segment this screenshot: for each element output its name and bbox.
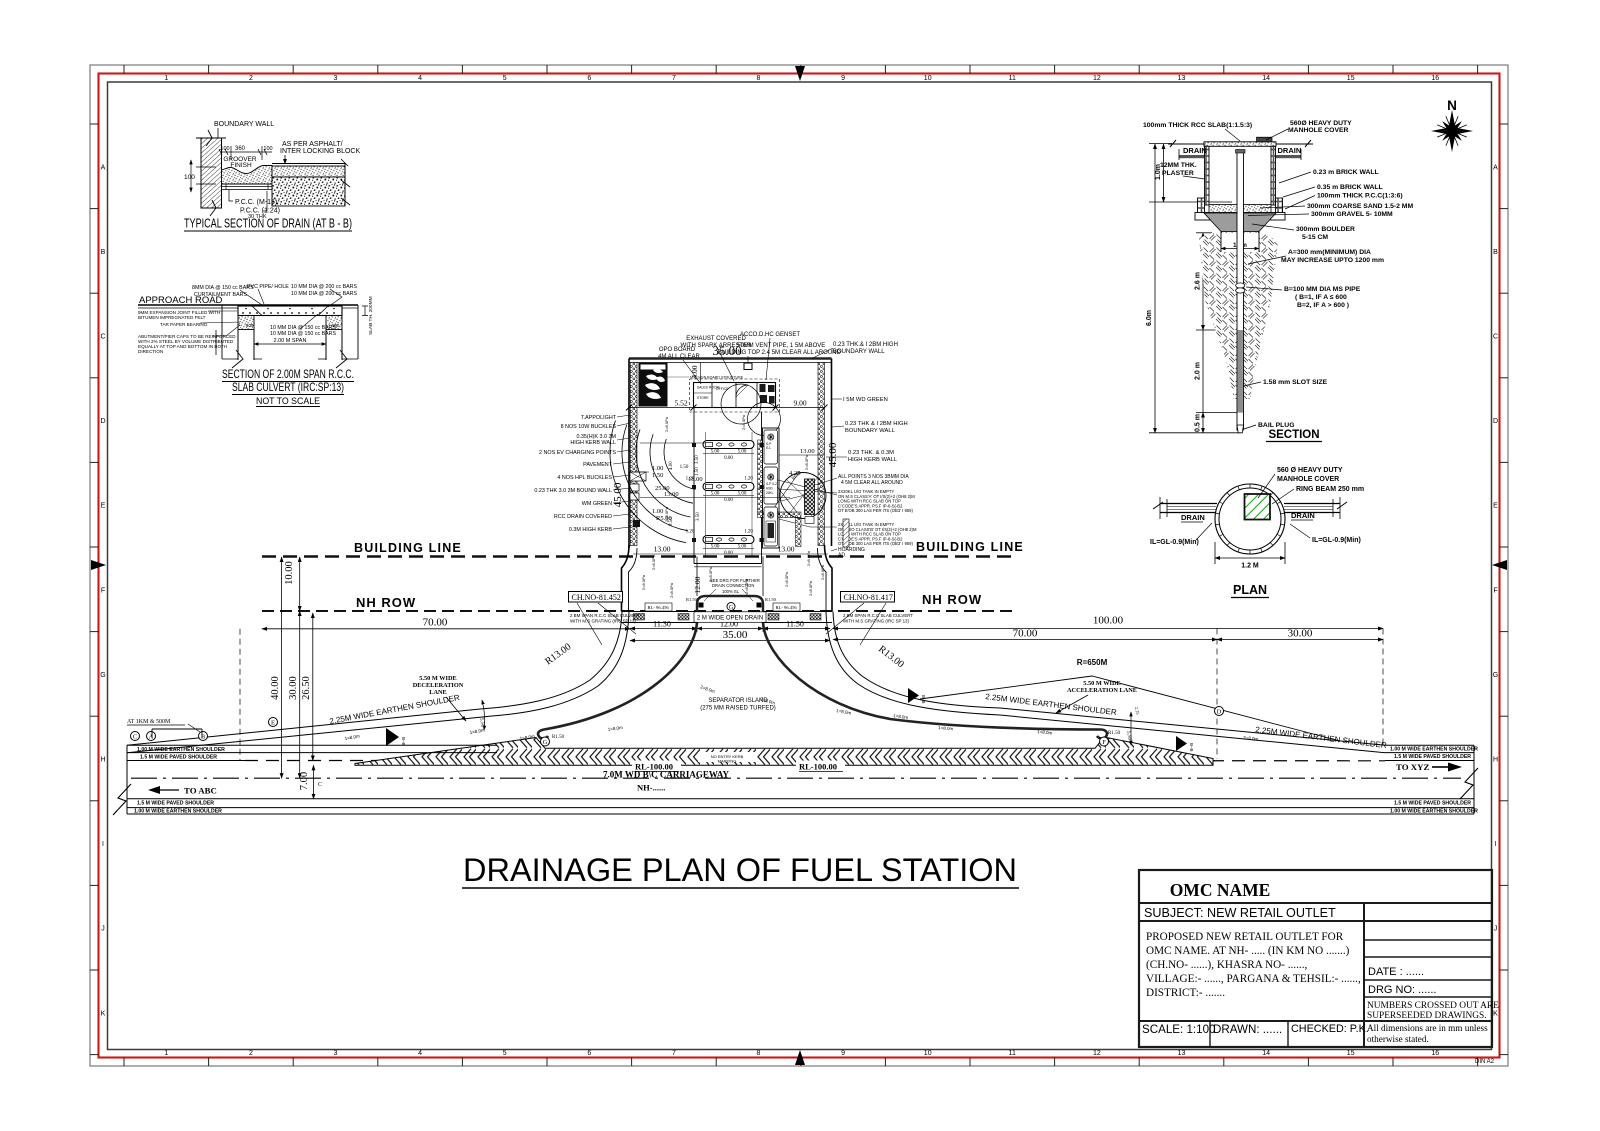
svg-text:BUILDING LINE: BUILDING LINE <box>916 540 1024 554</box>
svg-text:2=8.0Pa: 2=8.0Pa <box>820 564 825 580</box>
svg-text:K: K <box>1493 1010 1498 1017</box>
svg-text:AD.: AD. <box>838 553 846 559</box>
svg-text:11.50: 11.50 <box>786 620 804 629</box>
svg-text:NUMBERS CROSSED OUT ARE: NUMBERS CROSSED OUT ARE <box>1367 1001 1499 1011</box>
svg-text:1.50: 1.50 <box>652 472 663 479</box>
svg-text:4: 4 <box>418 75 422 82</box>
svg-text:MAY INCREASE UPTO 1200 mm: MAY INCREASE UPTO 1200 mm <box>1281 257 1384 264</box>
svg-text:2=8.0Pa: 2=8.0Pa <box>651 554 656 570</box>
svg-text:I 5M WD GREEN: I 5M WD GREEN <box>843 397 888 403</box>
svg-text:8: 8 <box>757 1050 761 1057</box>
svg-text:2=8.0Pa: 2=8.0Pa <box>708 566 713 582</box>
svg-text:11: 11 <box>1009 1050 1016 1057</box>
svg-text:CHECKED: P.K.: CHECKED: P.K. <box>1291 1023 1369 1035</box>
svg-text:T.APPOLIGHT: T.APPOLIGHT <box>581 415 617 421</box>
svg-text:2 NOS EV CHARGING POINTS: 2 NOS EV CHARGING POINTS <box>539 450 616 456</box>
svg-text:OT B'OB 300 LAS PER ITS (OB: OT B'OB 300 LAS PER ITS (OB3' I 959) <box>838 508 913 513</box>
svg-text:(CH.NO- ......), KHASRA NO- ..: (CH.NO- ......), KHASRA NO- ......, <box>1146 959 1307 971</box>
svg-text:12MM THK.: 12MM THK. <box>1160 162 1197 169</box>
svg-text:7.0M WD B\C CARRIAGEWAY: 7.0M WD B\C CARRIAGEWAY <box>603 770 730 780</box>
svg-text:RL- 96.456: RL- 96.456 <box>776 605 798 610</box>
svg-text:2=8.0Pa: 2=8.0Pa <box>669 582 674 598</box>
svg-text:12: 12 <box>1093 1050 1101 1057</box>
svg-text:J: J <box>1494 926 1498 933</box>
svg-text:3: 3 <box>334 75 338 82</box>
svg-text:2=8.0Pa: 2=8.0Pa <box>741 414 746 430</box>
svg-text:SLAB CULVERT (IRC:SP:13): SLAB CULVERT (IRC:SP:13) <box>232 380 344 394</box>
svg-text:G: G <box>100 672 105 679</box>
svg-text:15: 15 <box>1347 75 1355 82</box>
svg-text:RCC DRAIN COVERED: RCC DRAIN COVERED <box>554 514 612 520</box>
svg-text:12: 12 <box>1093 75 1101 82</box>
svg-text:2: 2 <box>249 75 253 82</box>
svg-text:B–B: B–B <box>921 695 926 704</box>
svg-text:5.52: 5.52 <box>674 399 687 408</box>
svg-text:300mm GRAVEL 5- 10MM: 300mm GRAVEL 5- 10MM <box>1311 211 1393 218</box>
svg-text:0.00: 0.00 <box>724 551 733 556</box>
svg-text:A: A <box>149 734 154 741</box>
svg-text:5.00: 5.00 <box>738 491 747 496</box>
svg-text:1.5 M WIDE PAVED SHOULDER: 1.5 M WIDE PAVED SHOULDER <box>1394 754 1471 760</box>
svg-text:OMC NAME: OMC NAME <box>1170 880 1271 900</box>
svg-text:IL=GL-0.9(Min): IL=GL-0.9(Min) <box>1312 537 1361 544</box>
svg-text:B–B: B–B <box>401 737 406 746</box>
svg-text:MANHOLE COVER: MANHOLE COVER <box>1288 127 1349 134</box>
svg-text:10 MM DIA @ 150 cc BARS: 10 MM DIA @ 150 cc BARS <box>270 331 336 337</box>
svg-text:100% SL: 100% SL <box>722 589 740 594</box>
svg-text:HSD: HSD <box>766 487 773 491</box>
svg-text:1: 1 <box>164 1050 168 1057</box>
svg-text:1.00: 1.00 <box>652 465 663 472</box>
svg-text:NOT TO SCALE: NOT TO SCALE <box>256 396 320 406</box>
svg-text:13.00: 13.00 <box>664 491 679 498</box>
svg-text:30.00: 30.00 <box>1288 628 1313 640</box>
svg-text:2: 2 <box>249 1050 253 1057</box>
svg-text:BOUNDARY WALL: BOUNDARY WALL <box>214 121 274 128</box>
svg-text:100.00: 100.00 <box>1093 615 1124 627</box>
svg-text:E: E <box>271 720 275 727</box>
svg-text:2.6 m: 2.6 m <box>1195 272 1202 290</box>
svg-text:SECTION: SECTION <box>1268 429 1319 441</box>
svg-text:9.00: 9.00 <box>793 399 806 408</box>
svg-text:5.00: 5.00 <box>711 544 720 549</box>
svg-text:OFFICE: OFFICE <box>716 387 729 391</box>
svg-text:0.23 THK.& I 2BM HIGH: 0.23 THK.& I 2BM HIGH <box>833 342 898 348</box>
svg-text:1.00 M WIDE EARTHEN SHOULDER: 1.00 M WIDE EARTHEN SHOULDER <box>134 808 222 814</box>
svg-text:VILLAGE:- ......, PARGANA & TE: VILLAGE:- ......, PARGANA & TEHSIL:- ...… <box>1146 973 1361 985</box>
svg-text:AS PER ASPHALT/: AS PER ASPHALT/ <box>282 141 343 148</box>
svg-text:11.30: 11.30 <box>653 620 671 629</box>
svg-text:10: 10 <box>924 1050 932 1057</box>
svg-text:B–B: B–B <box>1189 743 1194 752</box>
svg-text:1.5 M WIDE PAVED SHOULDER: 1.5 M WIDE PAVED SHOULDER <box>140 755 217 761</box>
svg-text:DRAIN: DRAIN <box>1183 146 1207 155</box>
svg-text:0.23 THK 3.0 3M BOUND WALL: 0.23 THK 3.0 3M BOUND WALL <box>534 488 612 494</box>
svg-text:PROPOSED NEW RETAIL OUTLET FOR: PROPOSED NEW RETAIL OUTLET FOR <box>1146 931 1344 943</box>
svg-text:E: E <box>1493 503 1498 510</box>
svg-text:30.00: 30.00 <box>288 676 299 700</box>
svg-text:7.00: 7.00 <box>299 772 310 790</box>
svg-text:CURTAILMENT BARS: CURTAILMENT BARS <box>194 292 247 298</box>
svg-text:10 MM DIA @ 200 cc BARS: 10 MM DIA @ 200 cc BARS <box>291 284 357 290</box>
svg-text:D: D <box>1493 418 1498 425</box>
svg-text:2=8.0Pa: 2=8.0Pa <box>744 578 749 594</box>
svg-text:OMC NAME. AT NH- ..... (IN KM: OMC NAME. AT NH- ..... (IN KM NO .......… <box>1146 945 1350 957</box>
svg-text:1.50: 1.50 <box>695 467 700 476</box>
svg-text:4 NOS HPL BUCKLES: 4 NOS HPL BUCKLES <box>557 475 612 481</box>
svg-text:3: 3 <box>334 1050 338 1057</box>
svg-text:45.00: 45.00 <box>827 442 839 467</box>
svg-text:6.0m: 6.0m <box>1146 310 1153 326</box>
svg-text:8MM DIA @ 150 cc BARS: 8MM DIA @ 150 cc BARS <box>192 285 254 291</box>
svg-text:16: 16 <box>1431 1050 1439 1057</box>
svg-text:DATE : ......: DATE : ...... <box>1368 966 1424 978</box>
svg-text:4 5M CLEAR ALL AROUND: 4 5M CLEAR ALL AROUND <box>841 480 903 486</box>
svg-text:300mm BOULDER: 300mm BOULDER <box>1296 226 1355 233</box>
svg-text:2.00 M SPAN: 2.00 M SPAN <box>274 338 307 344</box>
svg-text:1.00 M WIDE EARTHEN SHOULDER: 1.00 M WIDE EARTHEN SHOULDER <box>137 747 225 753</box>
svg-text:10.00: 10.00 <box>284 561 295 585</box>
svg-text:6: 6 <box>587 75 591 82</box>
svg-text:DIN A2: DIN A2 <box>1475 1059 1495 1065</box>
svg-text:5.00: 5.00 <box>738 449 747 454</box>
svg-text:TYPICAL SECTION OF DRAIN (AT B: TYPICAL SECTION OF DRAIN (AT B - B) <box>184 217 352 231</box>
svg-text:1.00 M WIDE EARTHEN SHOULDER: 1.00 M WIDE EARTHEN SHOULDER <box>1390 747 1478 753</box>
svg-text:70.00: 70.00 <box>1013 628 1038 640</box>
svg-text:45.00: 45.00 <box>612 482 624 507</box>
svg-text:DRAINAGE PLAN OF FUEL STATION: DRAINAGE PLAN OF FUEL STATION <box>463 852 1017 888</box>
svg-text:MANHOLE COVER: MANHOLE COVER <box>1277 476 1339 483</box>
svg-text:RL-100.00: RL-100.00 <box>799 762 837 772</box>
svg-text:IL=GL-0.9(Min): IL=GL-0.9(Min) <box>1150 539 1199 546</box>
svg-text:OPO BOARD: OPO BOARD <box>659 347 696 353</box>
svg-text:ACCELERATION LANE: ACCELERATION LANE <box>1067 687 1137 694</box>
svg-text:INTER LOCKING BLOCK: INTER LOCKING BLOCK <box>280 148 360 155</box>
svg-text:OT B'OB 300 LAS PER ITS (OB: OT B'OB 300 LAS PER ITS (OB3' I 959) <box>838 541 913 546</box>
svg-text:NH-......: NH-...... <box>637 783 665 793</box>
svg-text:DRAWN: ......: DRAWN: ...... <box>1213 1023 1282 1036</box>
svg-text:1.20: 1.20 <box>686 530 695 535</box>
svg-text:12.00: 12.00 <box>693 576 702 593</box>
svg-text:2=8.0Pa: 2=8.0Pa <box>804 454 809 470</box>
svg-text:16: 16 <box>1431 75 1439 82</box>
svg-text:DRAIN: DRAIN <box>1278 146 1302 155</box>
svg-text:2.0 m: 2.0 m <box>1195 362 1202 380</box>
svg-text:3.50: 3.50 <box>696 512 701 521</box>
svg-text:BOUNDARY WALL: BOUNDARY WALL <box>833 349 885 355</box>
svg-text:5.50 M WIDE: 5.50 M WIDE <box>1083 680 1121 687</box>
svg-text:A: A <box>101 164 106 171</box>
svg-text:13: 13 <box>1178 75 1186 82</box>
svg-text:RING BEAM 250 mm: RING BEAM 250 mm <box>1296 486 1364 493</box>
svg-text:STORE: STORE <box>697 396 709 400</box>
svg-text:SCALE: 1:100: SCALE: 1:100 <box>1142 1023 1215 1036</box>
svg-text:D: D <box>1217 709 1222 716</box>
svg-text:35.00: 35.00 <box>723 629 748 641</box>
svg-text:560Ø HEAVY DUTY: 560Ø HEAVY DUTY <box>1290 120 1352 127</box>
svg-text:100: 100 <box>263 146 272 152</box>
svg-text:3.50: 3.50 <box>695 455 700 464</box>
svg-text:4M ALL CLEAR: 4M ALL CLEAR <box>658 354 700 360</box>
svg-text:13.00: 13.00 <box>800 448 815 455</box>
svg-text:BOUNDARY WALL: BOUNDARY WALL <box>845 428 896 434</box>
svg-text:P.C.C. (M-15): P.C.C. (M-15) <box>235 199 277 206</box>
svg-text:S-P 3-2: S-P 3-2 <box>766 482 777 486</box>
svg-text:1.50: 1.50 <box>680 465 689 470</box>
svg-text:5-15 CM: 5-15 CM <box>1302 234 1328 241</box>
svg-text:PAVEMENT: PAVEMENT <box>583 462 613 468</box>
svg-text:5: 5 <box>503 1050 507 1057</box>
svg-text:2=8.0Pa: 2=8.0Pa <box>806 550 811 566</box>
svg-text:0.23 THK. & 0.3M: 0.23 THK. & 0.3M <box>848 450 894 456</box>
svg-text:2=8.0Pa: 2=8.0Pa <box>641 574 646 590</box>
svg-text:TO ABC: TO ABC <box>184 786 217 796</box>
svg-text:B=2, IF A > 600 ): B=2, IF A > 600 ) <box>1297 302 1349 309</box>
svg-text:SUBJECT: NEW RETAIL OUTLET: SUBJECT: NEW RETAIL OUTLET <box>1144 906 1336 920</box>
svg-text:18.00: 18.00 <box>688 476 703 483</box>
svg-text:35.00: 35.00 <box>712 343 741 358</box>
svg-text:13.00: 13.00 <box>778 545 795 554</box>
svg-text:360: 360 <box>235 146 246 152</box>
svg-text:BUILDING LINE: BUILDING LINE <box>354 541 462 555</box>
svg-text:D: D <box>100 418 105 425</box>
svg-text:1: 1 <box>164 75 168 82</box>
svg-text:50MM VENT PIPE, 1 5M ABOVE: 50MM VENT PIPE, 1 5M ABOVE <box>737 343 825 349</box>
svg-text:PLAN: PLAN <box>1233 583 1267 597</box>
svg-text:ACCO.D.HC GENSET: ACCO.D.HC GENSET <box>740 332 800 338</box>
svg-text:13.00: 13.00 <box>654 545 671 554</box>
svg-text:0.23 m BRICK WALL: 0.23 m BRICK WALL <box>1313 169 1379 176</box>
svg-text:B: B <box>101 249 106 256</box>
svg-text:BITUMEN IMPREGNATED FELT: BITUMEN IMPREGNATED FELT <box>138 315 206 320</box>
svg-text:2=8.0Pa: 2=8.0Pa <box>808 580 813 596</box>
svg-text:100mm THICK RCC SLAB(1:1.5:3): 100mm THICK RCC SLAB(1:1.5:3) <box>1143 122 1252 129</box>
svg-text:1.2 M: 1.2 M <box>1241 563 1259 570</box>
svg-text:WITH M.S GRATING (IRC SP 13): WITH M.S GRATING (IRC SP 13) <box>570 619 636 624</box>
svg-text:7: 7 <box>672 1050 676 1057</box>
svg-text:0.5 m: 0.5 m <box>1195 414 1202 432</box>
svg-text:I: I <box>102 841 104 848</box>
svg-text:100: 100 <box>184 174 195 181</box>
svg-text:5.00: 5.00 <box>711 491 720 496</box>
svg-text:FINISH: FINISH <box>230 162 252 169</box>
svg-text:I: I <box>1495 841 1497 848</box>
svg-text:SLAB TH. 200MM: SLAB TH. 200MM <box>368 296 374 335</box>
svg-text:7: 7 <box>672 75 676 82</box>
svg-text:C: C <box>318 782 322 788</box>
svg-text:8: 8 <box>757 75 761 82</box>
svg-text:5: 5 <box>503 75 507 82</box>
svg-text:4.00: 4.00 <box>669 461 674 470</box>
svg-text:9: 9 <box>841 75 845 82</box>
svg-text:10: 10 <box>924 75 932 82</box>
svg-text:AT 1KM & 500M: AT 1KM & 500M <box>127 719 171 725</box>
svg-text:RL- 96.456: RL- 96.456 <box>648 605 670 610</box>
svg-text:5.50 M WIDE: 5.50 M WIDE <box>419 675 457 682</box>
svg-text:BAIL PLUG: BAIL PLUG <box>1258 422 1295 429</box>
svg-text:MARKING: MARKING <box>718 759 737 764</box>
svg-text:DRG NO: ......: DRG NO: ...... <box>1368 984 1436 996</box>
svg-text:G: G <box>729 605 734 611</box>
svg-text:HIGH KERB WALL: HIGH KERB WALL <box>570 440 616 446</box>
svg-text:SUPERSEEDED DRAWINGS.: SUPERSEEDED DRAWINGS. <box>1367 1011 1487 1021</box>
svg-text:R=650M: R=650M <box>1077 658 1108 667</box>
svg-text:560 Ø HEAVY DUTY: 560 Ø HEAVY DUTY <box>1277 467 1343 474</box>
svg-text:NH ROW: NH ROW <box>922 592 982 607</box>
svg-text:EXHAUST COVERED: EXHAUST COVERED <box>686 336 746 342</box>
svg-text:SECTION OF 2.00M SPAN R.C.C.: SECTION OF 2.00M SPAN R.C.C. <box>222 367 354 381</box>
svg-text:1.00: 1.00 <box>652 508 663 515</box>
svg-text:DIRECTION: DIRECTION <box>138 349 163 354</box>
svg-text:14: 14 <box>1262 75 1270 82</box>
svg-text:DISTRICT:- .......: DISTRICT:- ....... <box>1146 987 1225 999</box>
svg-text:1.5 M WIDE PAVED SHOULDER: 1.5 M WIDE PAVED SHOULDER <box>1394 801 1471 807</box>
svg-text:0.00: 0.00 <box>724 456 733 461</box>
svg-text:All dimensions are in mm unles: All dimensions are in mm unless <box>1367 1023 1488 1033</box>
svg-text:5.00: 5.00 <box>711 449 720 454</box>
svg-text:HIGH KERB WALL: HIGH KERB WALL <box>848 457 898 463</box>
svg-text:13: 13 <box>1178 1050 1186 1057</box>
svg-text:500: 500 <box>246 323 254 328</box>
svg-text:9: 9 <box>841 1050 845 1057</box>
svg-text:40.00: 40.00 <box>270 676 281 700</box>
svg-text:F: F <box>101 587 105 594</box>
svg-text:R1.50: R1.50 <box>765 597 777 602</box>
svg-text:F: F <box>1102 739 1106 746</box>
svg-text:R1.50: R1.50 <box>552 735 565 740</box>
svg-text:0.00: 0.00 <box>724 498 733 503</box>
svg-text:2=8.0Pa: 2=8.0Pa <box>664 416 669 432</box>
svg-text:8 NOS 10W BUCKLES: 8 NOS 10W BUCKLES <box>561 424 617 430</box>
svg-text:20KL: 20KL <box>766 491 774 495</box>
svg-text:70.00: 70.00 <box>423 617 448 629</box>
svg-text:1.20: 1.20 <box>744 477 753 482</box>
svg-text:0.35 m BRICK WALL: 0.35 m BRICK WALL <box>1317 184 1383 191</box>
svg-text:4.25: 4.25 <box>789 470 800 477</box>
svg-text:1.58 mm SLOT SIZE: 1.58 mm SLOT SIZE <box>1263 379 1328 386</box>
svg-text:E-L: E-L <box>766 446 771 450</box>
svg-text:15: 15 <box>1347 1050 1355 1057</box>
svg-text:CH.NO-81.417: CH.NO-81.417 <box>844 593 893 602</box>
svg-text:DRAIN: DRAIN <box>1291 511 1315 520</box>
svg-text:2=8.0Pa: 2=8.0Pa <box>664 506 669 522</box>
svg-text:J: J <box>101 926 105 933</box>
svg-text:300mm COARSE SAND 1.5-2 MM: 300mm COARSE SAND 1.5-2 MM <box>1307 203 1413 210</box>
svg-text:11: 11 <box>1009 75 1016 82</box>
svg-text:2=8.0Pa: 2=8.0Pa <box>784 571 789 587</box>
svg-text:6: 6 <box>587 1050 591 1057</box>
svg-text:25.00: 25.00 <box>655 485 670 492</box>
svg-text:100mm THICK P.C.C(1:3:6): 100mm THICK P.C.C(1:3:6) <box>1317 193 1403 200</box>
svg-text:2 M WIDE OPEN DRAIN: 2 M WIDE OPEN DRAIN <box>697 616 763 622</box>
svg-text:B=100 MM DIA MS PIPE: B=100 MM DIA MS PIPE <box>1284 286 1361 293</box>
svg-text:DECELERATION: DECELERATION <box>413 682 464 689</box>
svg-text:F: F <box>1493 587 1497 594</box>
svg-text:100: 100 <box>220 146 229 152</box>
svg-text:A: A <box>1493 164 1498 171</box>
svg-text:10 MM DIA @ 200 cc BARS: 10 MM DIA @ 200 cc BARS <box>291 291 357 297</box>
svg-text:0.23 THK & I 2BM HIGH: 0.23 THK & I 2BM HIGH <box>845 421 908 427</box>
svg-text:G: G <box>543 739 548 746</box>
svg-text:(275 MM RAISED TURFED): (275 MM RAISED TURFED) <box>700 706 776 712</box>
svg-text:5.00: 5.00 <box>738 544 747 549</box>
svg-text:E: E <box>101 503 106 510</box>
svg-text:K: K <box>101 1010 106 1017</box>
svg-text:1.5 M WIDE PAVED SHOULDER: 1.5 M WIDE PAVED SHOULDER <box>137 801 214 807</box>
svg-text:H: H <box>1493 757 1498 764</box>
svg-text:C: C <box>133 734 137 741</box>
svg-text:14: 14 <box>1262 1050 1270 1057</box>
svg-text:otherwise stated.: otherwise stated. <box>1367 1034 1429 1044</box>
svg-text:NH ROW: NH ROW <box>356 595 416 610</box>
svg-text:H: H <box>100 757 105 764</box>
svg-text:0.3M HIGH KERB: 0.3M HIGH KERB <box>569 527 613 533</box>
svg-text:PLASTER: PLASTER <box>1162 170 1194 177</box>
svg-text:R1.50: R1.50 <box>1108 731 1121 736</box>
svg-text:( B=1, IF A ≤ 600: ( B=1, IF A ≤ 600 <box>1295 294 1347 301</box>
svg-text:4.00: 4.00 <box>690 365 699 378</box>
svg-text:R1.50: R1.50 <box>686 597 698 602</box>
svg-text:1.20: 1.20 <box>744 530 753 535</box>
svg-text:G: G <box>1493 672 1498 679</box>
svg-text:C: C <box>1493 334 1498 341</box>
svg-text:1.00 M WIDE EARTHEN SHOULDER: 1.00 M WIDE EARTHEN SHOULDER <box>1390 808 1478 814</box>
svg-text:PVC PIPE/ HOLE: PVC PIPE/ HOLE <box>247 284 289 290</box>
svg-text:TO XYZ: TO XYZ <box>1396 762 1429 772</box>
svg-text:DRAIN: DRAIN <box>1181 513 1205 522</box>
svg-text:C: C <box>100 334 105 341</box>
svg-text:4: 4 <box>418 1050 422 1057</box>
svg-text:26.50: 26.50 <box>301 676 312 700</box>
svg-text:B: B <box>1493 249 1498 256</box>
svg-text:WM GREEN: WM GREEN <box>582 501 612 507</box>
svg-text:CH.NO-81.452: CH.NO-81.452 <box>572 593 621 602</box>
svg-text:A=300 mm(MINIMUM) DIA: A=300 mm(MINIMUM) DIA <box>1288 249 1371 256</box>
svg-text:2 BM SPAN R.C.C SLAB CULVERT: 2 BM SPAN R.C.C SLAB CULVERT <box>570 613 640 618</box>
